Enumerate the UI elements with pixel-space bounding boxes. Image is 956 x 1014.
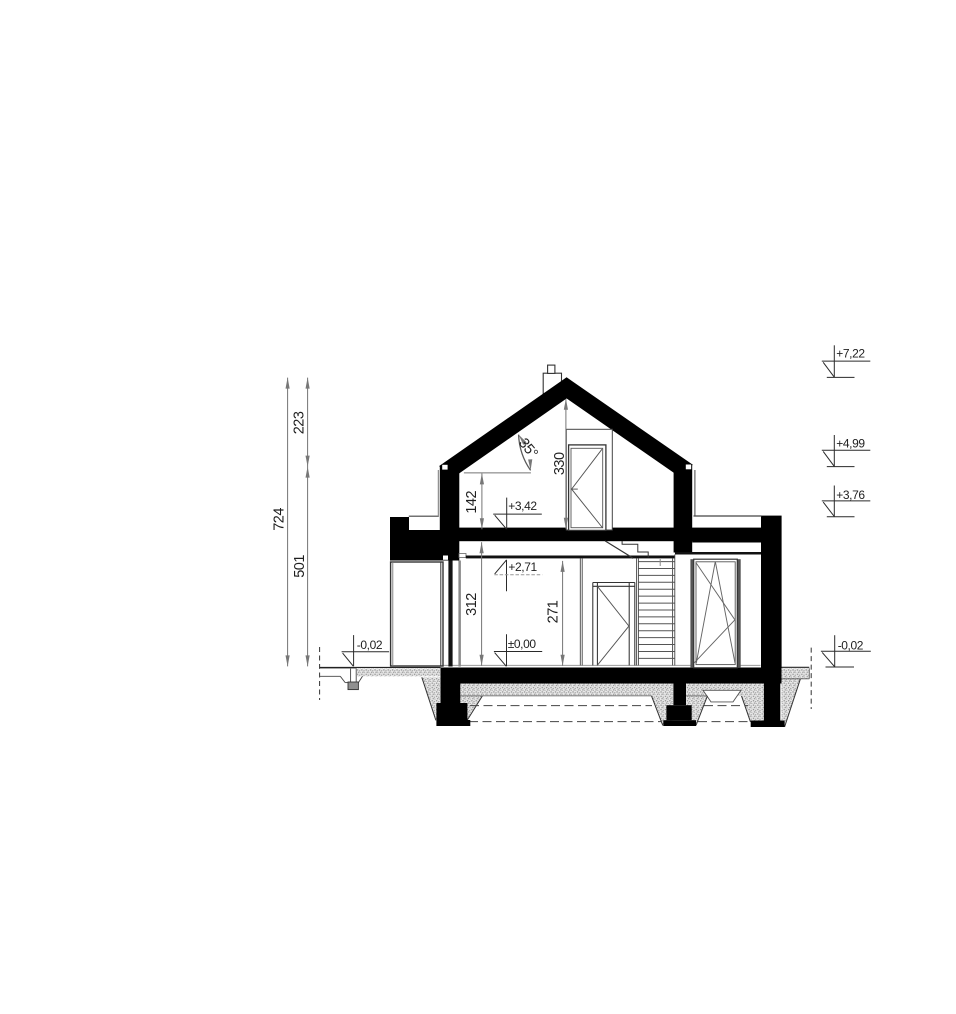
svg-text:+7,22: +7,22 [836,346,865,360]
svg-text:+3,76: +3,76 [836,488,865,502]
svg-text:+4,99: +4,99 [836,436,865,450]
svg-text:±0,00: ±0,00 [508,637,537,651]
svg-text:-0,02: -0,02 [838,638,864,652]
svg-text:+2,71: +2,71 [508,560,537,574]
svg-text:312: 312 [464,593,480,616]
svg-text:724: 724 [272,508,288,531]
svg-text:501: 501 [292,555,308,578]
svg-text:142: 142 [464,491,480,514]
svg-text:271: 271 [546,600,562,623]
svg-text:-0,02: -0,02 [357,638,383,652]
svg-text:+3,42: +3,42 [508,499,537,513]
svg-text:330: 330 [552,452,568,475]
svg-text:223: 223 [291,411,307,434]
